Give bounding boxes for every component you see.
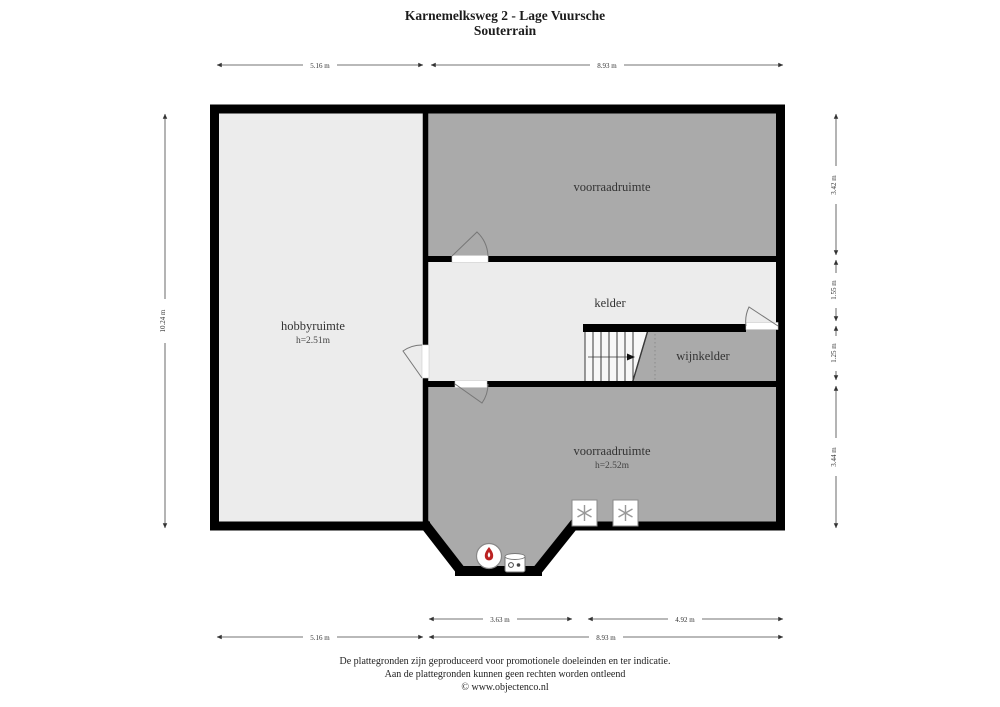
dimension-right-top: 3.42 m xyxy=(830,175,838,195)
door-opening-voorraad-top xyxy=(452,256,488,263)
door-opening-wijnkelder xyxy=(746,323,778,330)
room-hobbyruimte xyxy=(214,109,426,526)
floorplan-drawing: voorraadruimte kelder wijnkelder hobbyru… xyxy=(0,0,1000,707)
dimension-bottom-inner-left: 3.63 m xyxy=(490,616,510,624)
label-hobbyruimte: hobbyruimte xyxy=(281,319,345,333)
dimension-right-lower-mid: 1.25 m xyxy=(830,343,838,363)
freezer-icon xyxy=(572,500,597,526)
footer-disclaimer-line1: De plattegronden zijn geproduceerd voor … xyxy=(0,656,1000,667)
footer-copyright: © www.objectenco.nl xyxy=(0,682,1000,693)
door-opening-voorraad-bottom xyxy=(455,381,487,388)
burner-icon xyxy=(477,544,502,569)
dimension-bottom-outer-left: 5.16 m xyxy=(310,634,330,642)
footer-disclaimer-line2: Aan de plattegronden kunnen geen rechten… xyxy=(0,669,1000,680)
label-voorraadruimte-bottom-height: h=2.52m xyxy=(595,461,630,471)
label-hobbyruimte-height: h=2.51m xyxy=(296,336,331,346)
label-voorraadruimte-top: voorraadruimte xyxy=(573,180,651,194)
dimension-right-upper-mid: 1.55 m xyxy=(830,280,838,300)
door-opening-hobbyruimte xyxy=(422,345,429,378)
dimension-top-left: 5.16 m xyxy=(310,62,330,70)
label-kelder: kelder xyxy=(594,296,626,310)
label-wijnkelder: wijnkelder xyxy=(676,349,730,363)
freezer-icon xyxy=(613,500,638,526)
boiler-icon xyxy=(505,554,525,573)
floorplan-page: Karnemelksweg 2 - Lage Vuursche Souterra… xyxy=(0,0,1000,707)
label-voorraadruimte-bottom: voorraadruimte xyxy=(573,444,651,458)
dimension-bottom-inner-right: 4.92 m xyxy=(675,616,695,624)
dimension-top-right: 8.93 m xyxy=(597,62,617,70)
dimension-right-bottom: 3.44 m xyxy=(830,447,838,467)
dimension-left: 10.24 m xyxy=(159,309,167,333)
dimension-bottom-outer-right: 8.93 m xyxy=(596,634,616,642)
